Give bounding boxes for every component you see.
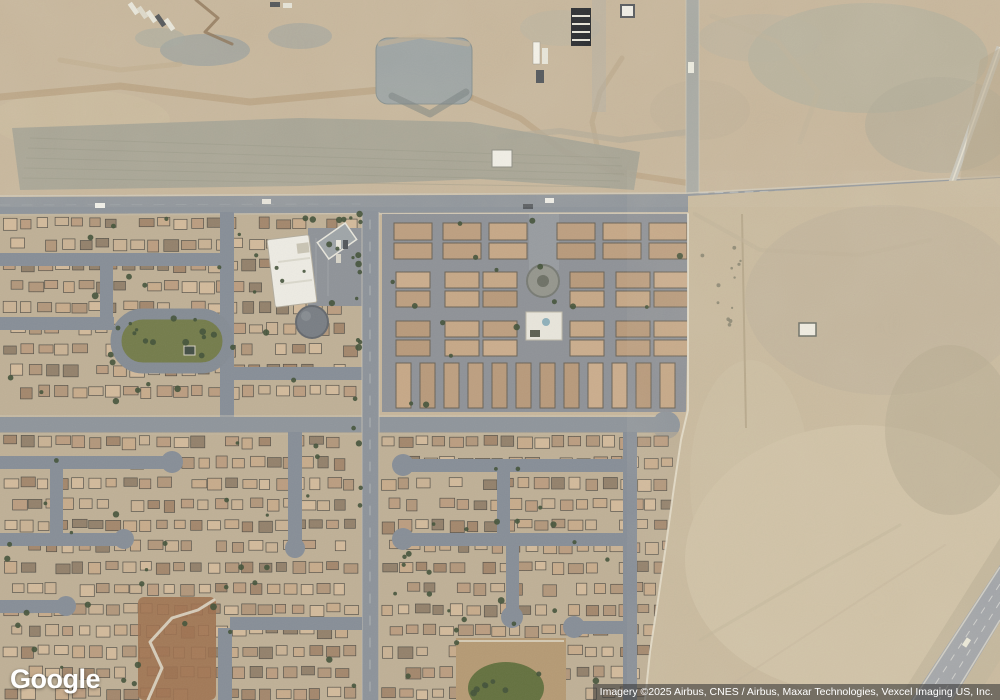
map-viewport[interactable]: Google Imagery ©2025 Airbus, CNES / Airb… bbox=[0, 0, 1000, 700]
satellite-imagery bbox=[0, 0, 1000, 700]
imagery-attribution: Imagery ©2025 Airbus, CNES / Airbus, Max… bbox=[593, 684, 1000, 700]
google-logo[interactable]: Google bbox=[10, 664, 100, 695]
map-layers bbox=[0, 0, 1000, 700]
